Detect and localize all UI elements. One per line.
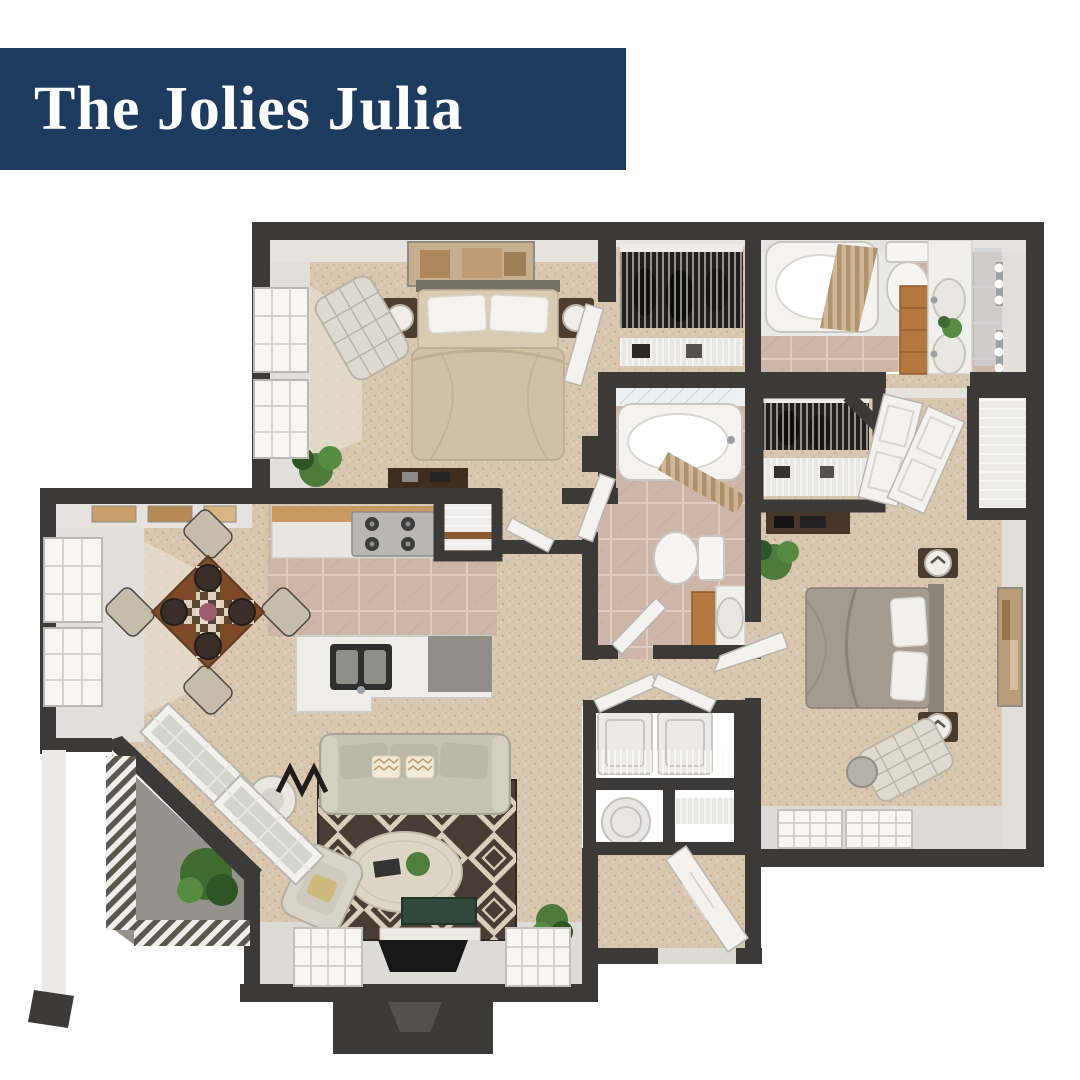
electronics — [774, 516, 794, 528]
wall-art-icon — [148, 506, 192, 522]
railing-icon — [134, 920, 250, 946]
stove-icon — [352, 512, 436, 556]
vanity-cabinet-icon — [692, 592, 716, 648]
place-setting — [161, 599, 187, 625]
window-icon — [294, 928, 362, 986]
wall — [582, 448, 598, 472]
desk-item — [402, 472, 418, 482]
bed-icon — [806, 584, 944, 712]
title-banner: The Jolies Julia — [0, 48, 626, 170]
patio-fascia — [42, 750, 66, 1004]
wall — [252, 222, 1044, 240]
wire-shelf-icon — [620, 248, 743, 328]
wall — [745, 867, 761, 964]
place-setting — [229, 599, 255, 625]
centerpiece-flowers — [199, 603, 217, 621]
folded-clothes — [632, 344, 650, 358]
sink-icon — [933, 334, 965, 374]
accent-pillow-icon — [372, 756, 400, 778]
window-icon — [44, 538, 102, 622]
water-heater-icon — [602, 798, 650, 846]
tv-icon — [378, 940, 468, 972]
sink-basin — [336, 650, 358, 684]
screenshot-root: The Jolies Julia — [0, 0, 1080, 1080]
window-icon — [778, 810, 842, 848]
east-wall-face — [1002, 252, 1026, 852]
wall — [745, 388, 761, 622]
shelf-edge — [620, 244, 743, 252]
tv-console-icon — [402, 898, 476, 924]
sofa-icon — [320, 734, 510, 814]
faucet-icon — [931, 351, 938, 358]
wall — [598, 948, 658, 964]
window-icon — [254, 380, 308, 458]
desk-item — [430, 472, 450, 482]
wall — [663, 784, 675, 848]
doorway-floor — [658, 948, 736, 964]
accent-pillow-icon — [406, 756, 434, 778]
sink-icon — [717, 598, 743, 638]
wall — [582, 645, 618, 659]
folded-clothes — [686, 344, 702, 358]
side-table-icon — [847, 757, 877, 787]
place-setting — [195, 633, 221, 659]
window-icon — [254, 288, 308, 372]
plan-title: The Jolies Julia — [34, 74, 463, 145]
wire-lines — [979, 398, 1031, 508]
place-setting — [195, 565, 221, 591]
plant-icon — [406, 852, 430, 876]
bar-counter — [428, 636, 492, 692]
wall — [745, 849, 1044, 867]
art-detail — [504, 252, 526, 276]
window-icon — [506, 928, 570, 986]
sink-icon — [933, 279, 965, 321]
wall — [582, 848, 598, 984]
doorway-floor — [500, 490, 562, 504]
art-detail — [420, 250, 450, 278]
walk-in-closet-contents — [763, 396, 869, 496]
railing-icon — [106, 756, 136, 930]
wall — [745, 698, 761, 867]
folded-clothes — [774, 466, 790, 478]
doorway-floor — [886, 374, 970, 388]
wall — [745, 222, 761, 388]
bed-icon — [412, 280, 564, 460]
wall-art-icon — [92, 506, 136, 522]
sink-basin — [364, 650, 386, 684]
wall — [970, 372, 1044, 388]
wall — [1026, 222, 1044, 867]
electronics — [800, 516, 826, 528]
console-base — [380, 928, 480, 941]
folded-clothes — [820, 466, 834, 478]
wall — [598, 372, 745, 388]
faucet-icon — [727, 436, 735, 444]
faucet-icon — [357, 686, 365, 694]
window-icon — [846, 810, 912, 848]
desk-icon — [388, 468, 468, 490]
closet-1-contents — [620, 244, 743, 366]
wall — [598, 240, 616, 302]
wire-shelf-icon — [596, 750, 736, 774]
pantry-icon — [444, 500, 492, 550]
window-icon — [44, 628, 102, 706]
patio-corner-post — [28, 990, 74, 1028]
art-detail — [462, 248, 502, 278]
wall — [582, 532, 598, 660]
linen-closet-contents — [979, 398, 1031, 508]
toilet-icon — [654, 532, 724, 584]
faucet-icon — [931, 297, 938, 304]
wall — [40, 488, 500, 504]
wall — [40, 738, 112, 752]
lamp-icon — [925, 550, 951, 576]
